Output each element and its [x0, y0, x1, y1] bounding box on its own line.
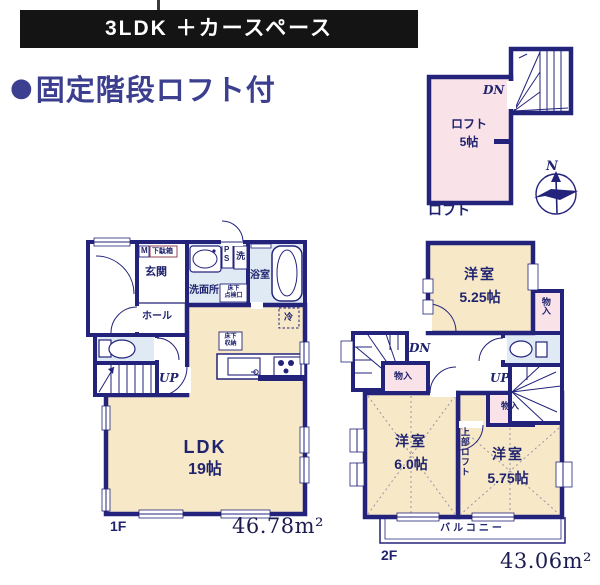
f1-ldk-label: LDK [165, 438, 245, 458]
f1-toilet-door-opening [154, 338, 161, 360]
f1-staircase [95, 363, 157, 395]
f1-porch [88, 242, 137, 335]
f1-toilet-fixture [99, 340, 135, 358]
f2-closet-a-label: 物入 [540, 297, 550, 315]
compass-icon [534, 171, 578, 214]
f1-meter-label: M [141, 247, 148, 256]
f1-ldk-door-opening [184, 367, 191, 393]
f2-toilet-fixture [510, 341, 547, 357]
headline-text: 固定階段ロフト付 [36, 67, 276, 109]
loft-room-label: ロフト [440, 118, 498, 131]
f2-dn-label: DN [409, 342, 430, 355]
f2-balcony-label: バルコニー [400, 523, 545, 534]
f1-hall-label: ホール [142, 311, 172, 322]
compass-north-label: N [546, 160, 558, 174]
f1-vanity-sink [190, 246, 221, 272]
f2-closet-c-label: 物入 [501, 402, 519, 412]
loft-door-opening [507, 81, 516, 109]
f1-hatch-label-2: 点検口 [220, 293, 247, 300]
loft-plan [429, 49, 578, 214]
f1-entry-door-opening [134, 306, 141, 332]
f1-up-label: UP [159, 372, 179, 385]
loft-size-label: 5帖 [440, 136, 498, 149]
f2-room525-size-label: 5.25帖 [444, 290, 516, 305]
f2-toilet-door-opening [500, 338, 507, 360]
f1-washroom-door-opening [251, 302, 263, 309]
f1-fridge-label: 冷 [284, 313, 293, 323]
f2-closet-b-label: 物入 [394, 372, 412, 382]
top-tick-mark [157, 0, 160, 10]
f1-bath-label: 浴室 [250, 270, 270, 281]
f2-room525-label: 洋室 [448, 267, 512, 282]
headline-bullet-icon: ● [10, 73, 34, 103]
f1-ldk-size-label: 19帖 [165, 461, 245, 479]
f1-kitchen-counter [217, 354, 305, 381]
f1-caption: 1F [110, 519, 126, 534]
f1-storage-label-2: 収納 [219, 341, 242, 348]
f1-entrance-label: 玄関 [145, 266, 167, 278]
f2-room60-label: 洋室 [379, 434, 443, 449]
f1-storage-label-1: 床下 [219, 334, 242, 341]
f1-hatch-label-1: 床下 [220, 286, 247, 293]
f2-up-label: UP [490, 372, 510, 385]
f1-bath-slide-door [251, 244, 271, 248]
f1-laundry-label: 洗 [236, 252, 245, 262]
f2-room60-door-opening [430, 390, 456, 397]
banner: 3LDK ＋カースペース [20, 10, 418, 48]
floor2-plan [341, 243, 572, 543]
f2-room575-size-label: 5.75帖 [472, 471, 544, 486]
f2-room575-label: 洋室 [476, 447, 540, 462]
f1-area-label: 46.78m² [232, 515, 312, 538]
loft-stair-box [511, 49, 571, 113]
f2-caption: 2F [381, 548, 397, 563]
f2-room-525 [428, 243, 533, 333]
f2-room60-size-label: 6.0帖 [379, 457, 443, 472]
f1-bathtub [272, 246, 302, 301]
f2-upper-loft-label: 上部ロフト [459, 427, 469, 477]
f1-shoe-cabinet-label: 下駄箱 [152, 248, 173, 256]
f2-area-label: 43.06m² [500, 550, 580, 573]
page-title: ● 固定階段ロフト付 [10, 70, 276, 106]
f1-washroom-label: 洗面所 [189, 285, 219, 296]
loft-caption: ロフト [428, 203, 470, 218]
f1-pipe-s-label: S [224, 255, 229, 264]
loft-dn-label: DN [483, 84, 504, 97]
